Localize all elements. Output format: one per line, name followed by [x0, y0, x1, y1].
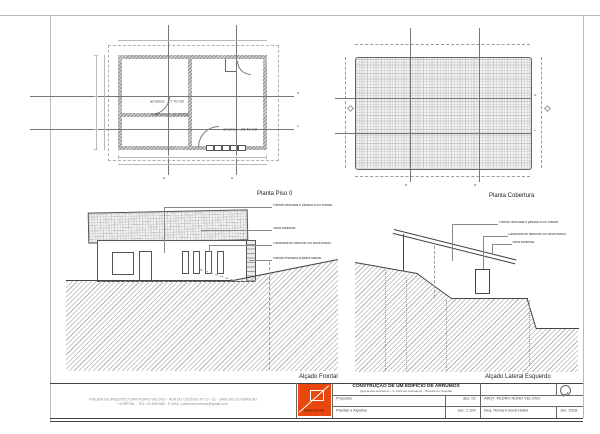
plan-window [214, 145, 222, 151]
hidden-line [385, 268, 386, 371]
section-line-a [335, 98, 531, 99]
sheet-contents: Plantas e Alçados [336, 409, 367, 413]
dimension-line [345, 57, 346, 168]
title-block-divider [556, 383, 557, 395]
title-block-divider [296, 383, 297, 418]
roof-plan-title: Planta Cobertura [489, 193, 534, 199]
floor-plan-title: Planta Piso 0 [257, 191, 292, 197]
leader-line [164, 207, 272, 208]
dimension-line [118, 40, 267, 41]
side-elevation-title: Alçado Lateral Esquerdo [485, 374, 551, 380]
drawing-number: des. 02 [463, 397, 476, 401]
section-mark: C' [534, 129, 537, 132]
front-elevation-roof [88, 209, 249, 243]
ground-line [536, 328, 579, 329]
leader-line [201, 230, 272, 231]
section-line-c [335, 133, 531, 134]
signature-stamp-icon [560, 385, 571, 396]
logo-text: PEDRO VELOSO [304, 410, 324, 413]
scale-label: esc. 1:100 [458, 409, 476, 413]
section-mark: A' [534, 94, 537, 97]
dimension-line [118, 157, 267, 158]
room-label: arrumos - 17.70 m2 [150, 100, 184, 104]
client-name: Req. Richard Scott Hollar [484, 409, 528, 413]
hidden-line [269, 262, 270, 370]
leader-line [164, 207, 165, 253]
ground-line [451, 298, 528, 299]
section-mark: B'' [231, 177, 234, 180]
title-block-divider [480, 383, 481, 418]
annotation: Telha cerâmica [512, 241, 534, 244]
signature-squiggle [561, 390, 570, 399]
dimension-tick [94, 129, 98, 130]
elevation-window [182, 251, 189, 274]
side-elevation-roof [393, 229, 516, 264]
dimension-line [118, 164, 267, 165]
leader-line [492, 244, 512, 245]
dimension-tick [94, 55, 98, 56]
hidden-line [529, 300, 530, 366]
dimension-line [104, 55, 105, 150]
sheet-right-edge [583, 15, 584, 418]
plan-window [238, 145, 246, 151]
section-mark: C' [297, 125, 300, 128]
dimension-line [355, 176, 530, 177]
section-line-b1 [410, 28, 411, 182]
hidden-line [446, 300, 447, 370]
pedro-veloso-logo: PEDRO VELOSO [298, 384, 331, 416]
logo-rect [310, 390, 324, 401]
section-line-b2 [236, 25, 237, 175]
section-mark: A' [297, 92, 300, 95]
annotation: Parede revestida a pedra natural [273, 257, 321, 260]
leader-line [209, 245, 210, 252]
hidden-line [434, 246, 435, 298]
annotation: Caixilharia de alumínio cor cinza escuro [273, 242, 331, 245]
leader-line [209, 245, 272, 246]
sheet-left-margin [50, 15, 51, 422]
title-block-divider [332, 395, 583, 396]
dimension-line [355, 44, 530, 45]
elevation-window [193, 251, 200, 274]
leader-line [492, 244, 493, 254]
ground-line [66, 280, 233, 281]
front-elevation-title: Alçado Frontal [299, 374, 338, 380]
project-title: CONSTRUÇÃO DE UM EDIFÍCIO DE ARRUMOS [352, 384, 459, 389]
section-mark: B' [405, 184, 408, 187]
floor-plan-room-lower-left [122, 117, 188, 146]
dimension-tick [236, 155, 237, 159]
project-subtitle: Quinta dos Azeiteiros - S. Paio de Grama… [360, 390, 452, 393]
elevation-window [112, 252, 134, 275]
title-block-divider [332, 406, 583, 407]
dimension-tick [94, 96, 98, 97]
title-block-border [50, 421, 583, 422]
dimension-line [96, 55, 97, 150]
side-elevation-ground [355, 260, 578, 372]
section-mark: B'' [474, 184, 477, 187]
leader-line [483, 236, 508, 237]
plan-window [206, 145, 214, 151]
leader-line [452, 224, 453, 261]
firm-address-line2: HOSPITAL - TEL: 91 8467080 - E-MAIL: ped… [51, 402, 295, 406]
hidden-line [406, 278, 407, 371]
room-label: arrumos - 11.07 m2 [155, 113, 189, 117]
title-block-divider [556, 406, 557, 418]
sheet-top-edge [0, 15, 600, 16]
dimension-diamond [347, 105, 354, 112]
dimension-diamond [544, 105, 551, 112]
elevation-door [139, 251, 152, 282]
title-block-divider [332, 383, 333, 418]
leader-line [249, 260, 272, 261]
dimension-tick [266, 155, 267, 159]
annotation: Caixilharia de alumínio cor cinza escuro [508, 233, 566, 236]
side-elevation-wall [403, 234, 404, 271]
section-line-b2 [479, 28, 480, 182]
architect-name: ARQT. PEDRO NUNO VELOSO [484, 397, 540, 401]
phase-label: Proposta [336, 397, 352, 401]
firm-address: ATELIER DE ARQUITECTURA PEDRO VELOSO - R… [51, 398, 295, 407]
date-label: Jun. 2018 [560, 409, 577, 413]
elevation-window [475, 269, 490, 294]
dimension-tick [168, 155, 169, 159]
annotation: Telha cerâmica [273, 227, 295, 230]
section-line-a [30, 96, 294, 97]
annotation: Parede rebocada e pintada à cor branca [499, 221, 558, 224]
dimension-tick [118, 155, 119, 159]
elevation-window [217, 251, 224, 274]
leader-line [483, 236, 484, 269]
title-block-border [50, 418, 583, 419]
leader-line [452, 224, 498, 225]
room-label: arrumos - 33.43 m2 [223, 128, 257, 132]
section-mark: B' [163, 177, 166, 180]
drawing-sheet: A' C' B' B'' arrumos - 17.70 m2 arrumos … [0, 0, 600, 434]
annotation: Parede rebocada e pintada à cor branca [273, 204, 332, 207]
roof-plan-slab [355, 57, 532, 170]
dimension-line [541, 57, 542, 168]
dimension-tick [94, 149, 98, 150]
plan-window [222, 145, 230, 151]
